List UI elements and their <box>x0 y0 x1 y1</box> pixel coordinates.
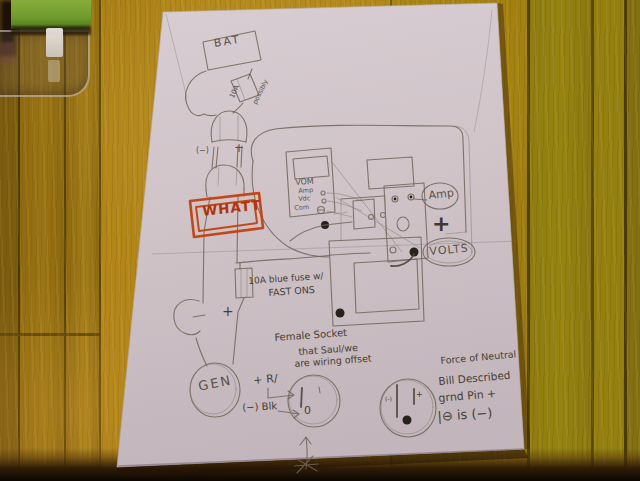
connector-neg-label: (−) <box>196 146 209 155</box>
vom-jack-vdc-label: Vdc <box>298 194 311 203</box>
right-socket-pos-mark: + <box>416 390 423 399</box>
socket-zero-label: 0 <box>304 404 311 417</box>
wire-terminal <box>336 309 345 318</box>
meter-plus-label: + <box>432 211 450 236</box>
ground-pin <box>403 416 412 425</box>
photo-of-wiring-sketch: BAT 10A possibly (−) + WHATT VOM Amp Vdc… <box>0 0 640 481</box>
right-socket-neg-mark: (-) <box>385 395 392 402</box>
wire-pos-label: + <box>222 303 234 319</box>
connector-pos-label: + <box>234 141 244 155</box>
meter-amp-label: Amp <box>428 186 454 202</box>
vom-jack-com-label: Com <box>294 203 309 212</box>
socket-neg-wire-label: (−) Blk <box>242 400 277 413</box>
socket-pos-wire-label: + R/ <box>253 372 278 387</box>
wiring-diagram-sketch <box>0 0 640 481</box>
